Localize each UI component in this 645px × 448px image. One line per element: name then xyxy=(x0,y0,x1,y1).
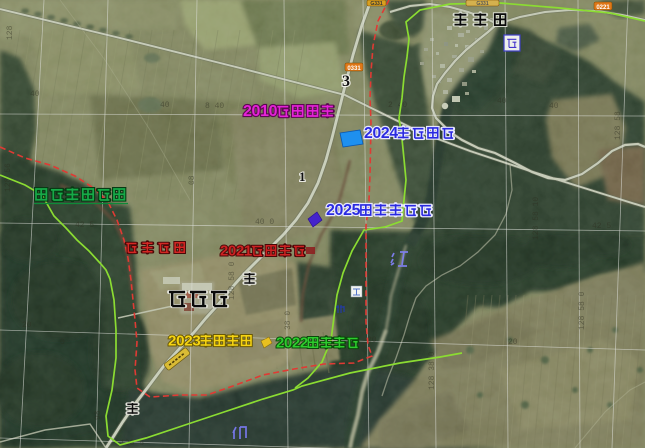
svg-text:2024: 2024 xyxy=(364,125,398,142)
svg-text:2021: 2021 xyxy=(220,243,252,259)
svg-text:2023: 2023 xyxy=(168,333,201,350)
svg-text:2010: 2010 xyxy=(243,103,278,120)
svg-text:2025: 2025 xyxy=(326,202,361,219)
svg-text:2022: 2022 xyxy=(276,335,308,351)
